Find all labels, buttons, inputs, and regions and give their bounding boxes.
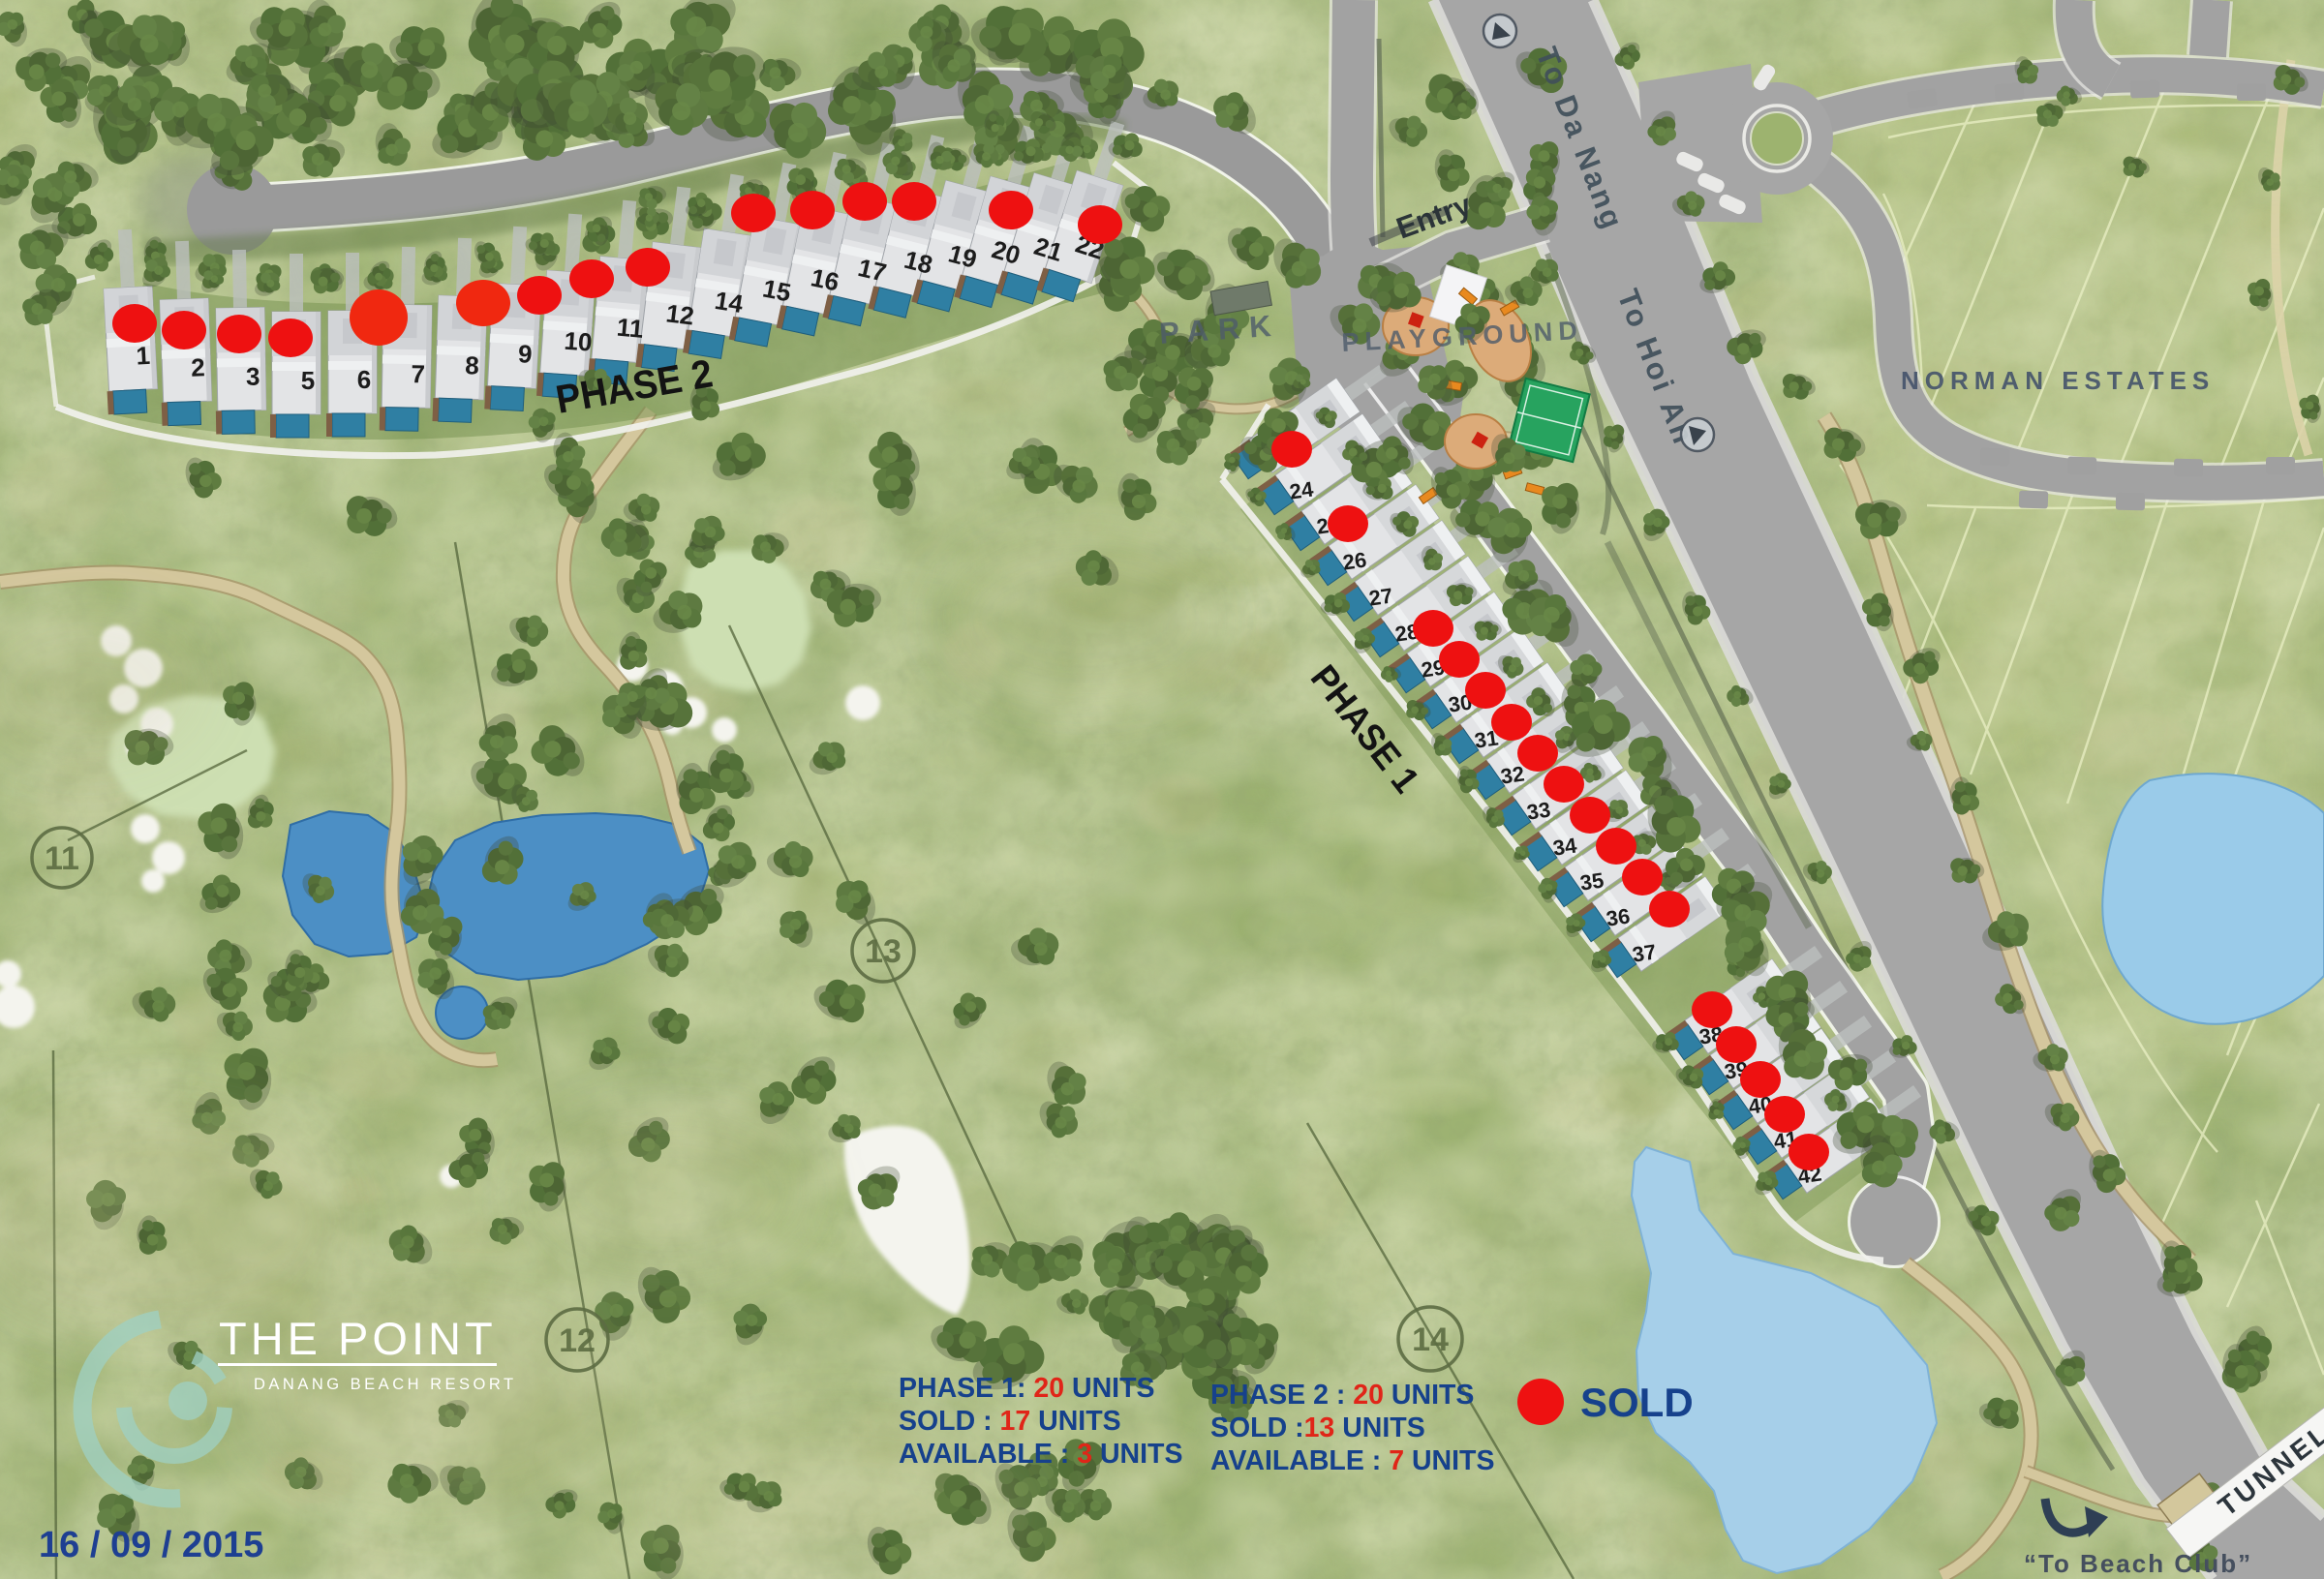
svg-text:SOLD: SOLD (1580, 1380, 1694, 1425)
svg-text:32: 32 (1499, 761, 1526, 788)
svg-text:11: 11 (45, 840, 79, 877)
svg-text:SOLD :13 UNITS: SOLD :13 UNITS (1210, 1412, 1425, 1443)
svg-text:NORMAN ESTATES: NORMAN ESTATES (1901, 366, 2215, 395)
svg-text:1: 1 (136, 341, 151, 371)
svg-text:7: 7 (411, 359, 425, 388)
svg-text:27: 27 (1367, 583, 1394, 610)
svg-text:16 / 09 / 2015: 16 / 09 / 2015 (39, 1525, 263, 1565)
svg-text:PHASE 2 : 20 UNITS: PHASE 2 : 20 UNITS (1210, 1380, 1474, 1411)
svg-text:37: 37 (1631, 939, 1658, 966)
svg-text:3: 3 (246, 362, 260, 391)
svg-text:15: 15 (760, 274, 793, 308)
svg-text:13: 13 (865, 933, 902, 970)
svg-text:DANANG BEACH RESORT: DANANG BEACH RESORT (254, 1376, 517, 1393)
svg-text:8: 8 (465, 350, 480, 380)
svg-text:34: 34 (1551, 833, 1578, 860)
svg-text:14: 14 (1412, 1321, 1449, 1358)
svg-text:6: 6 (357, 365, 371, 394)
svg-text:9: 9 (517, 339, 533, 369)
svg-text:36: 36 (1605, 903, 1632, 930)
svg-text:35: 35 (1578, 867, 1605, 895)
svg-text:10: 10 (564, 326, 594, 357)
svg-text:“To Beach Club”: “To Beach Club” (2024, 1549, 2252, 1578)
svg-text:2: 2 (191, 352, 206, 381)
svg-text:THE POINT: THE POINT (219, 1313, 497, 1364)
svg-text:24: 24 (1288, 476, 1315, 503)
svg-text:33: 33 (1525, 797, 1552, 824)
svg-text:16: 16 (809, 262, 842, 296)
svg-text:SOLD : 17 UNITS: SOLD : 17 UNITS (899, 1406, 1121, 1437)
svg-text:5: 5 (301, 366, 315, 395)
svg-text:12: 12 (664, 298, 695, 330)
svg-text:14: 14 (713, 286, 746, 319)
svg-text:AVAILABLE : 3 UNITS: AVAILABLE : 3 UNITS (899, 1439, 1182, 1470)
svg-text:AVAILABLE : 7 UNITS: AVAILABLE : 7 UNITS (1210, 1445, 1494, 1476)
svg-text:PHASE 1: 20 UNITS: PHASE 1: 20 UNITS (899, 1373, 1155, 1404)
svg-text:11: 11 (616, 313, 645, 344)
svg-text:26: 26 (1341, 547, 1368, 574)
svg-text:12: 12 (559, 1322, 596, 1359)
